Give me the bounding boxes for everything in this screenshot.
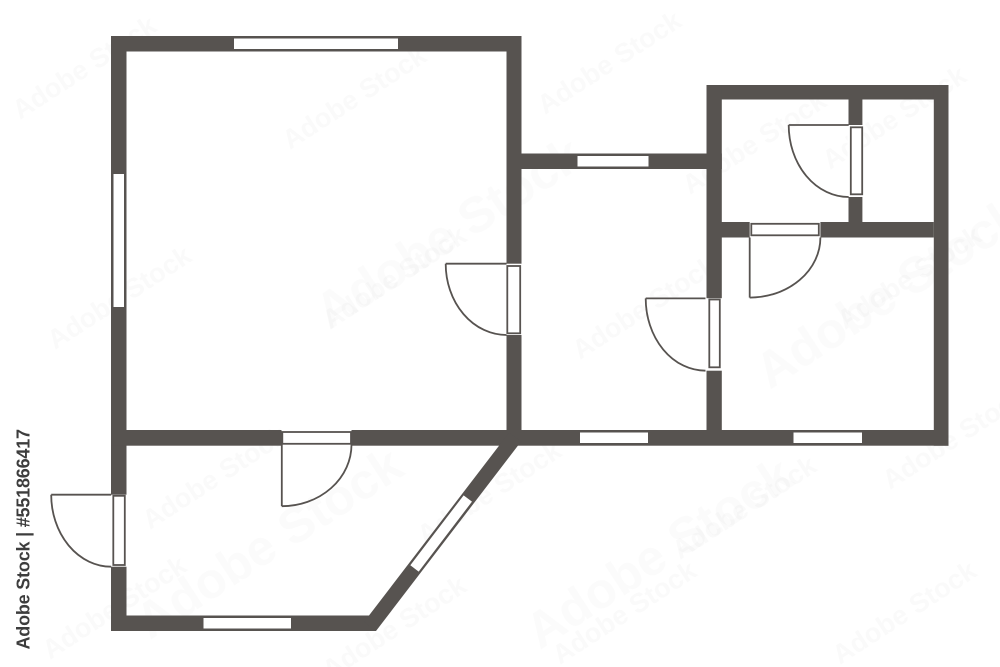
svg-text:Adobe Stock: Adobe Stock (532, 4, 688, 120)
svg-text:Adobe Stock: Adobe Stock (515, 446, 802, 660)
svg-text:Adobe Stock: Adobe Stock (827, 554, 983, 667)
